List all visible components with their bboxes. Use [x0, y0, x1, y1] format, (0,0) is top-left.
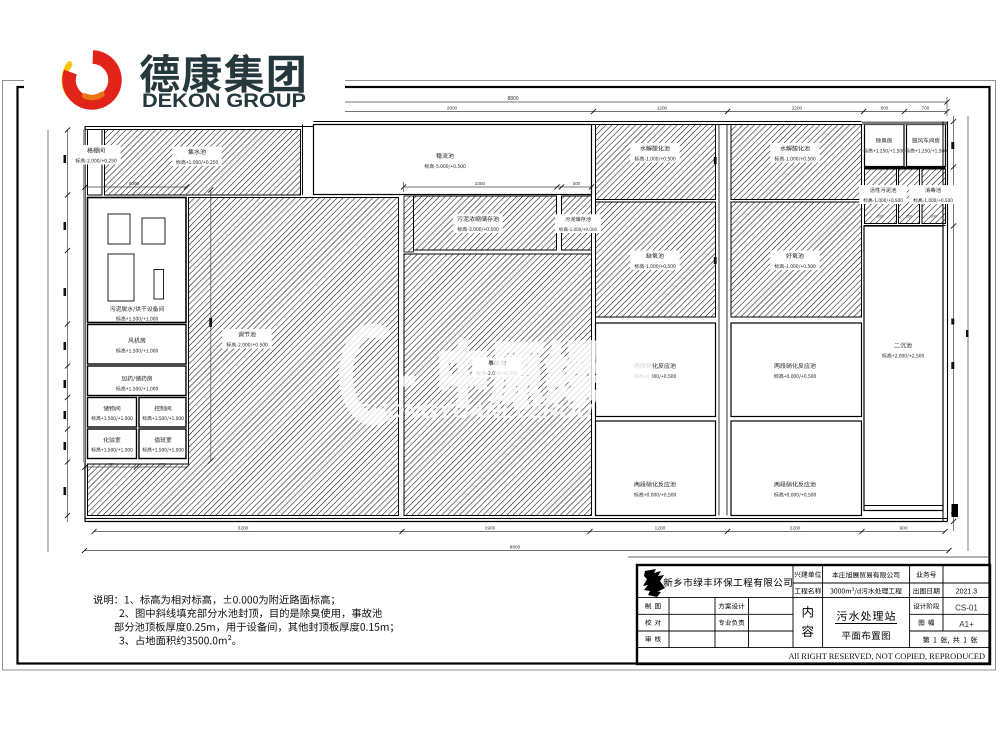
svg-text:6000: 6000: [129, 181, 140, 186]
svg-text:600: 600: [881, 106, 889, 111]
svg-text:900: 900: [899, 526, 907, 532]
svg-text:2021.3: 2021.3: [956, 589, 978, 596]
svg-text:2200: 2200: [790, 526, 801, 532]
svg-text:ZHONGYUANLVZHOU: ZHONGYUANLVZHOU: [356, 400, 593, 423]
svg-text:600: 600: [159, 463, 165, 467]
svg-text:2350: 2350: [475, 181, 486, 186]
svg-text:DEKON GROUP: DEKON GROUP: [142, 90, 306, 112]
svg-text:3200: 3200: [238, 526, 249, 532]
svg-text:All RIGHT RESERVED, NOT CO: All RIGHT RESERVED, NOT COPIED, REPRODUC…: [788, 652, 985, 661]
svg-text:1200: 1200: [657, 106, 668, 111]
svg-text:2800: 2800: [447, 106, 458, 111]
svg-text:2200: 2200: [792, 106, 803, 111]
svg-text:500: 500: [573, 181, 581, 186]
svg-text:700: 700: [922, 106, 930, 111]
svg-text:1200: 1200: [655, 526, 666, 532]
svg-text:200: 200: [906, 215, 912, 219]
svg-text:A1+: A1+: [959, 620, 974, 629]
svg-text:1900: 1900: [485, 526, 496, 532]
svg-text:8800: 8800: [510, 545, 521, 551]
svg-text:CS-01: CS-01: [955, 604, 978, 613]
svg-text:200: 200: [877, 215, 883, 219]
svg-text:200: 200: [930, 215, 936, 219]
svg-text:600: 600: [108, 463, 114, 467]
svg-text:8800: 8800: [507, 96, 518, 102]
